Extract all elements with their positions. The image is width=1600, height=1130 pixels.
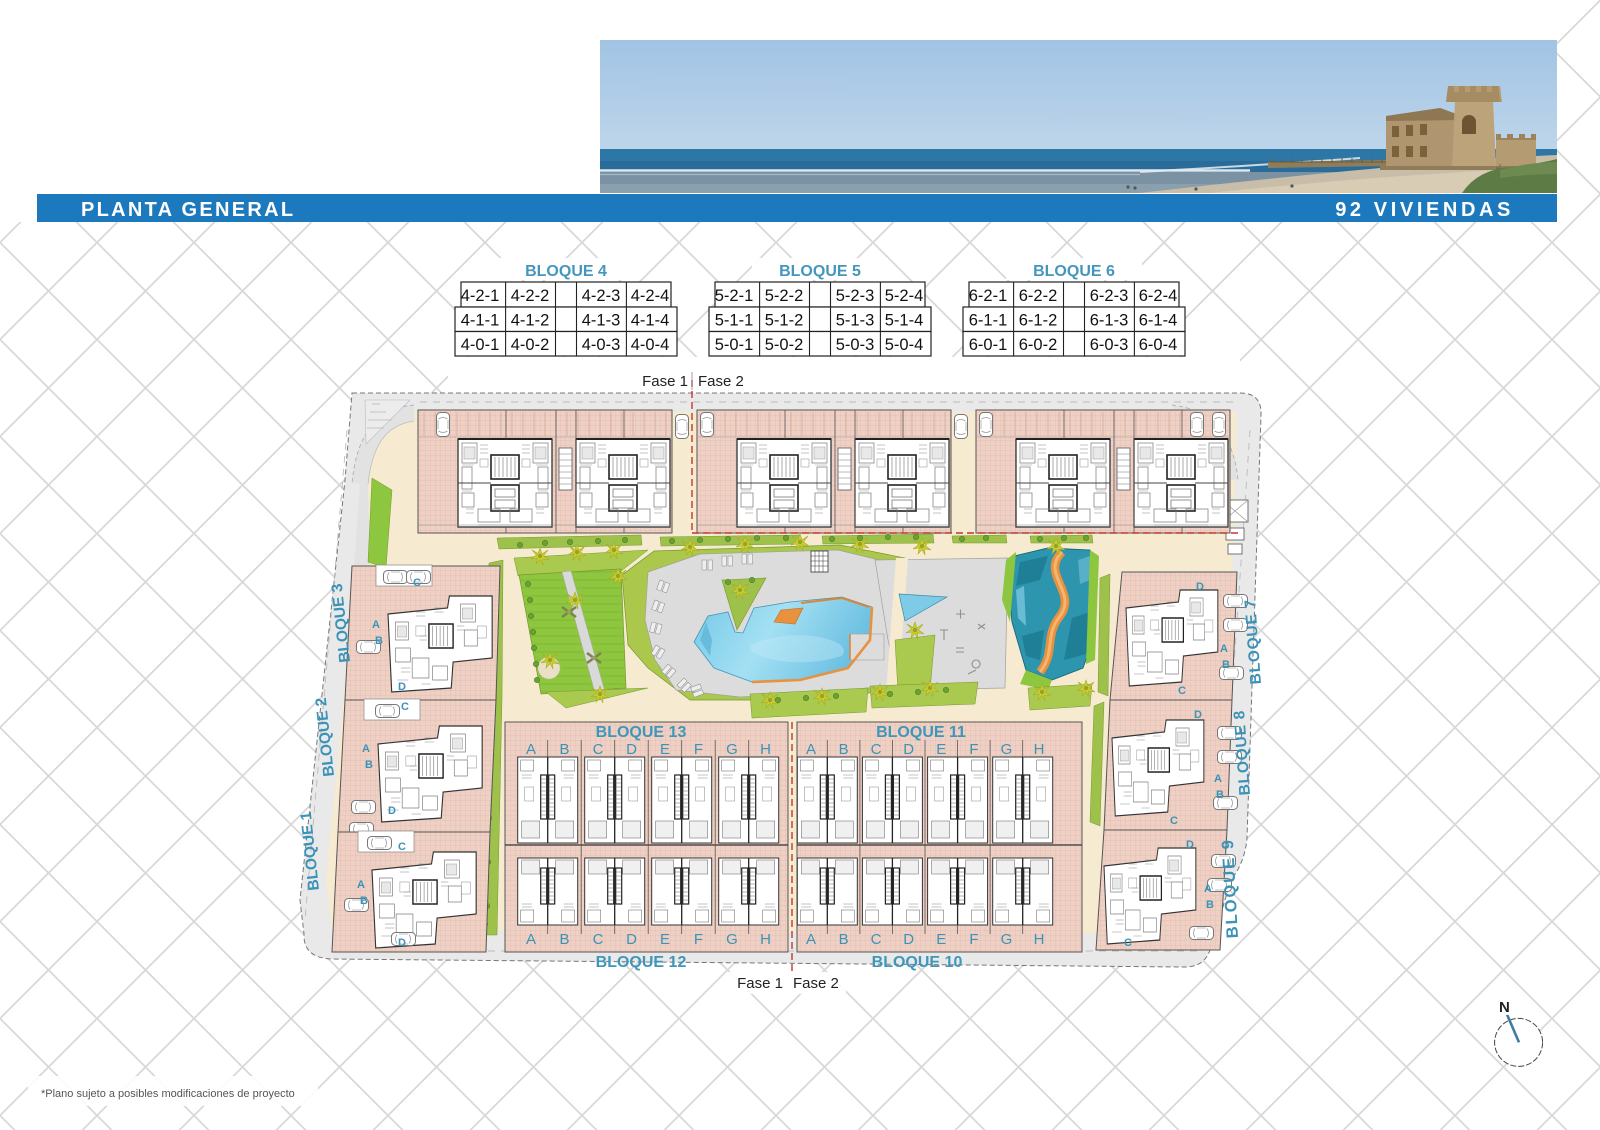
svg-text:4-1-4: 4-1-4 — [631, 312, 670, 330]
svg-text:B: B — [839, 931, 849, 948]
svg-text:C: C — [1124, 937, 1132, 949]
svg-text:5-2-3: 5-2-3 — [836, 287, 875, 305]
svg-text:6-1-4: 6-1-4 — [1139, 312, 1178, 330]
svg-text:5-1-4: 5-1-4 — [885, 312, 924, 330]
svg-text:D: D — [388, 805, 396, 817]
svg-text:5-0-2: 5-0-2 — [765, 336, 804, 354]
svg-text:B: B — [1206, 899, 1214, 911]
svg-text:C: C — [1178, 685, 1186, 697]
svg-text:C: C — [871, 741, 882, 758]
svg-text:A: A — [526, 931, 536, 948]
svg-text:G: G — [726, 931, 738, 948]
svg-text:D: D — [1186, 839, 1194, 851]
svg-text:B: B — [375, 635, 383, 647]
svg-text:6-1-3: 6-1-3 — [1090, 312, 1129, 330]
svg-text:A: A — [806, 931, 816, 948]
svg-text:4-0-2: 4-0-2 — [511, 336, 550, 354]
svg-text:B: B — [1222, 659, 1230, 671]
svg-text:C: C — [871, 931, 882, 948]
svg-text:BLOQUE 4: BLOQUE 4 — [525, 263, 607, 280]
svg-text:*Plano sujeto a posibles modif: *Plano sujeto a posibles modificaciones … — [41, 1088, 295, 1100]
svg-text:5-1-1: 5-1-1 — [715, 312, 754, 330]
svg-text:A: A — [1204, 883, 1212, 895]
svg-text:F: F — [694, 931, 703, 948]
svg-text:92 VIVIENDAS: 92 VIVIENDAS — [1335, 199, 1514, 221]
svg-text:BLOQUE 6: BLOQUE 6 — [1033, 263, 1115, 280]
svg-text:5-0-3: 5-0-3 — [836, 336, 875, 354]
svg-text:B: B — [559, 741, 569, 758]
svg-text:F: F — [694, 741, 703, 758]
svg-text:E: E — [660, 741, 670, 758]
svg-text:A: A — [526, 741, 536, 758]
svg-text:N: N — [1499, 999, 1510, 1016]
svg-text:D: D — [903, 741, 914, 758]
svg-text:G: G — [726, 741, 738, 758]
svg-text:5-0-1: 5-0-1 — [715, 336, 754, 354]
svg-text:5-1-2: 5-1-2 — [765, 312, 804, 330]
svg-text:D: D — [1194, 709, 1202, 721]
svg-text:A: A — [357, 879, 365, 891]
svg-text:6-2-2: 6-2-2 — [1019, 287, 1058, 305]
svg-text:D: D — [626, 931, 637, 948]
svg-text:4-2-3: 4-2-3 — [582, 287, 621, 305]
svg-text:C: C — [401, 701, 409, 713]
svg-text:H: H — [1034, 931, 1045, 948]
svg-text:6-2-1: 6-2-1 — [969, 287, 1008, 305]
svg-text:Fase 2: Fase 2 — [793, 975, 839, 992]
svg-text:H: H — [760, 931, 771, 948]
svg-text:4-2-2: 4-2-2 — [511, 287, 550, 305]
svg-text:F: F — [969, 741, 978, 758]
svg-text:A: A — [1214, 773, 1222, 785]
svg-text:D: D — [903, 931, 914, 948]
svg-text:Fase 2: Fase 2 — [698, 373, 744, 390]
svg-text:5-0-4: 5-0-4 — [885, 336, 924, 354]
svg-text:D: D — [1196, 581, 1204, 593]
svg-text:BLOQUE 12: BLOQUE 12 — [596, 954, 687, 971]
svg-text:PLANTA GENERAL: PLANTA GENERAL — [81, 199, 295, 221]
svg-text:Fase 1: Fase 1 — [642, 373, 688, 390]
svg-text:4-1-1: 4-1-1 — [461, 312, 500, 330]
svg-text:B: B — [559, 931, 569, 948]
svg-text:B: B — [839, 741, 849, 758]
svg-text:D: D — [626, 741, 637, 758]
svg-text:H: H — [1034, 741, 1045, 758]
svg-text:B: B — [360, 895, 368, 907]
svg-text:4-1-3: 4-1-3 — [582, 312, 621, 330]
svg-text:B: B — [1216, 789, 1224, 801]
svg-text:E: E — [936, 741, 946, 758]
svg-text:C: C — [1170, 815, 1178, 827]
svg-text:5-2-4: 5-2-4 — [885, 287, 924, 305]
svg-text:BLOQUE 13: BLOQUE 13 — [596, 724, 687, 741]
svg-text:H: H — [760, 741, 771, 758]
svg-text:6-2-3: 6-2-3 — [1090, 287, 1129, 305]
svg-text:B: B — [365, 759, 373, 771]
svg-text:G: G — [1001, 741, 1013, 758]
svg-text:D: D — [398, 681, 406, 693]
svg-text:E: E — [936, 931, 946, 948]
svg-text:4-0-4: 4-0-4 — [631, 336, 670, 354]
svg-text:A: A — [362, 743, 370, 755]
svg-text:C: C — [593, 931, 604, 948]
svg-text:A: A — [806, 741, 816, 758]
svg-text:6-0-1: 6-0-1 — [969, 336, 1008, 354]
svg-text:6-0-3: 6-0-3 — [1090, 336, 1129, 354]
svg-text:D: D — [398, 937, 406, 949]
svg-text:C: C — [398, 841, 406, 853]
svg-text:Fase 1: Fase 1 — [737, 975, 783, 992]
svg-text:E: E — [660, 931, 670, 948]
svg-text:C: C — [593, 741, 604, 758]
svg-text:G: G — [1001, 931, 1013, 948]
svg-text:BLOQUE 5: BLOQUE 5 — [779, 263, 861, 280]
svg-text:6-2-4: 6-2-4 — [1139, 287, 1178, 305]
svg-text:C: C — [413, 577, 421, 589]
svg-text:5-2-1: 5-2-1 — [715, 287, 754, 305]
svg-text:6-0-2: 6-0-2 — [1019, 336, 1058, 354]
svg-text:6-1-1: 6-1-1 — [969, 312, 1008, 330]
svg-text:A: A — [1220, 643, 1228, 655]
svg-text:F: F — [969, 931, 978, 948]
svg-text:5-1-3: 5-1-3 — [836, 312, 875, 330]
svg-text:4-2-1: 4-2-1 — [461, 287, 500, 305]
svg-text:4-0-3: 4-0-3 — [582, 336, 621, 354]
svg-text:5-2-2: 5-2-2 — [765, 287, 804, 305]
svg-text:4-1-2: 4-1-2 — [511, 312, 550, 330]
svg-text:4-0-1: 4-0-1 — [461, 336, 500, 354]
svg-text:6-1-2: 6-1-2 — [1019, 312, 1058, 330]
svg-text:6-0-4: 6-0-4 — [1139, 336, 1178, 354]
svg-text:A: A — [372, 619, 380, 631]
svg-text:BLOQUE 11: BLOQUE 11 — [876, 724, 966, 741]
svg-text:BLOQUE 10: BLOQUE 10 — [872, 954, 963, 971]
svg-text:4-2-4: 4-2-4 — [631, 287, 670, 305]
